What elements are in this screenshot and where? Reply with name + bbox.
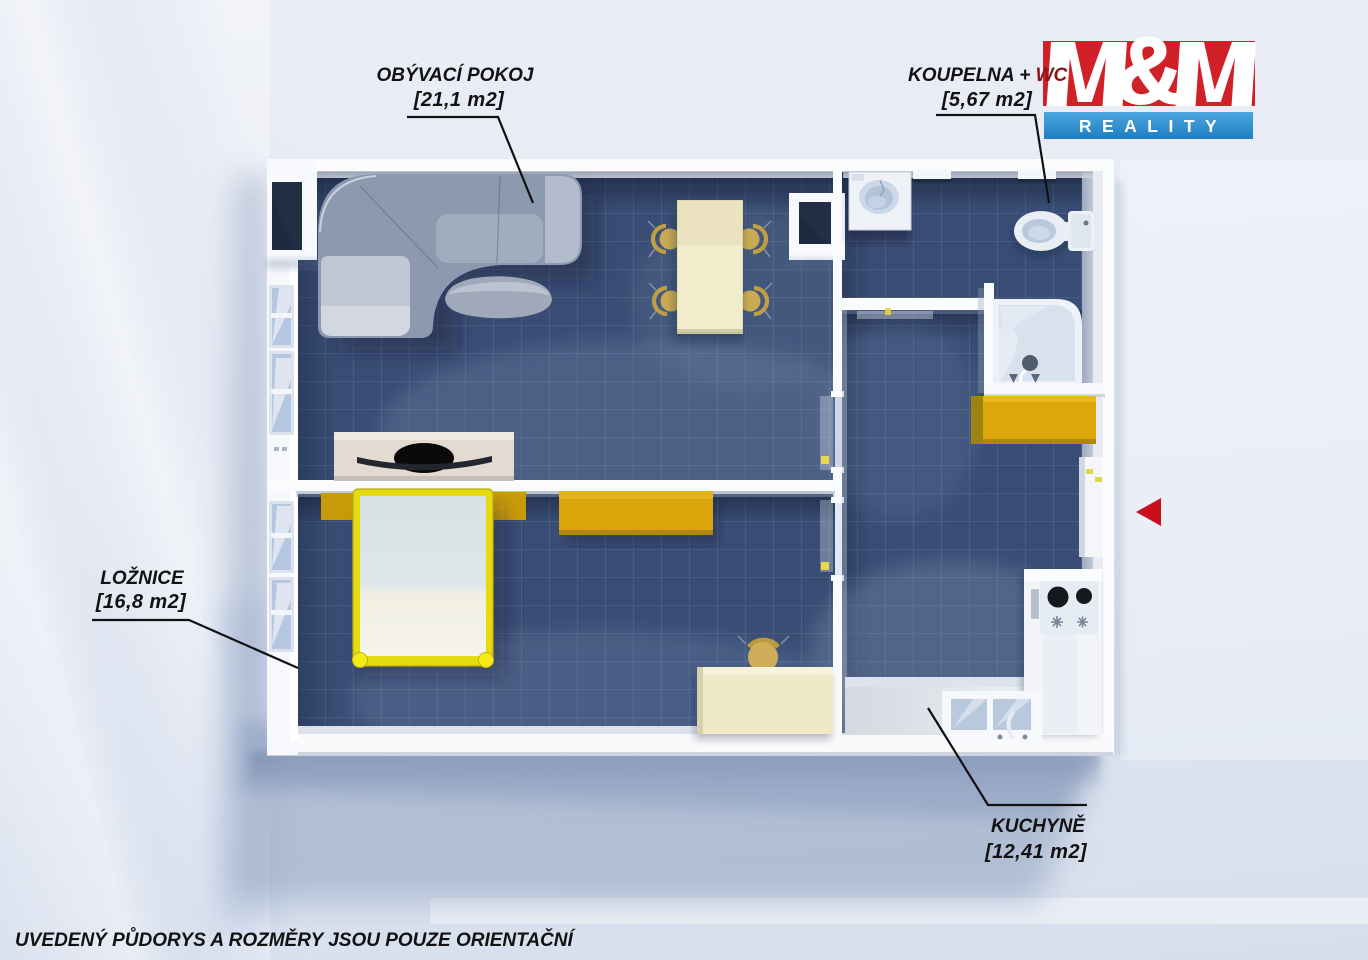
svg-text:REALITY: REALITY <box>1079 116 1227 136</box>
svg-text:[5,67 m2]: [5,67 m2] <box>941 89 1033 111</box>
svg-text:[12,41 m2]: [12,41 m2] <box>984 841 1088 863</box>
svg-text:&: & <box>1115 18 1184 124</box>
svg-text:KUCHYNĚ: KUCHYNĚ <box>991 815 1086 837</box>
svg-text:[21,1 m2]: [21,1 m2] <box>413 89 505 111</box>
svg-text:[16,8 m2]: [16,8 m2] <box>95 591 187 613</box>
svg-text:KOUPELNA + WC: KOUPELNA + WC <box>908 65 1068 86</box>
svg-text:UVEDENÝ PŮDORYS A ROZMĚRY JSOU: UVEDENÝ PŮDORYS A ROZMĚRY JSOU POUZE ORI… <box>15 928 576 951</box>
svg-text:LOŽNICE: LOŽNICE <box>100 567 185 589</box>
svg-text:OBÝVACÍ POKOJ: OBÝVACÍ POKOJ <box>377 64 534 86</box>
